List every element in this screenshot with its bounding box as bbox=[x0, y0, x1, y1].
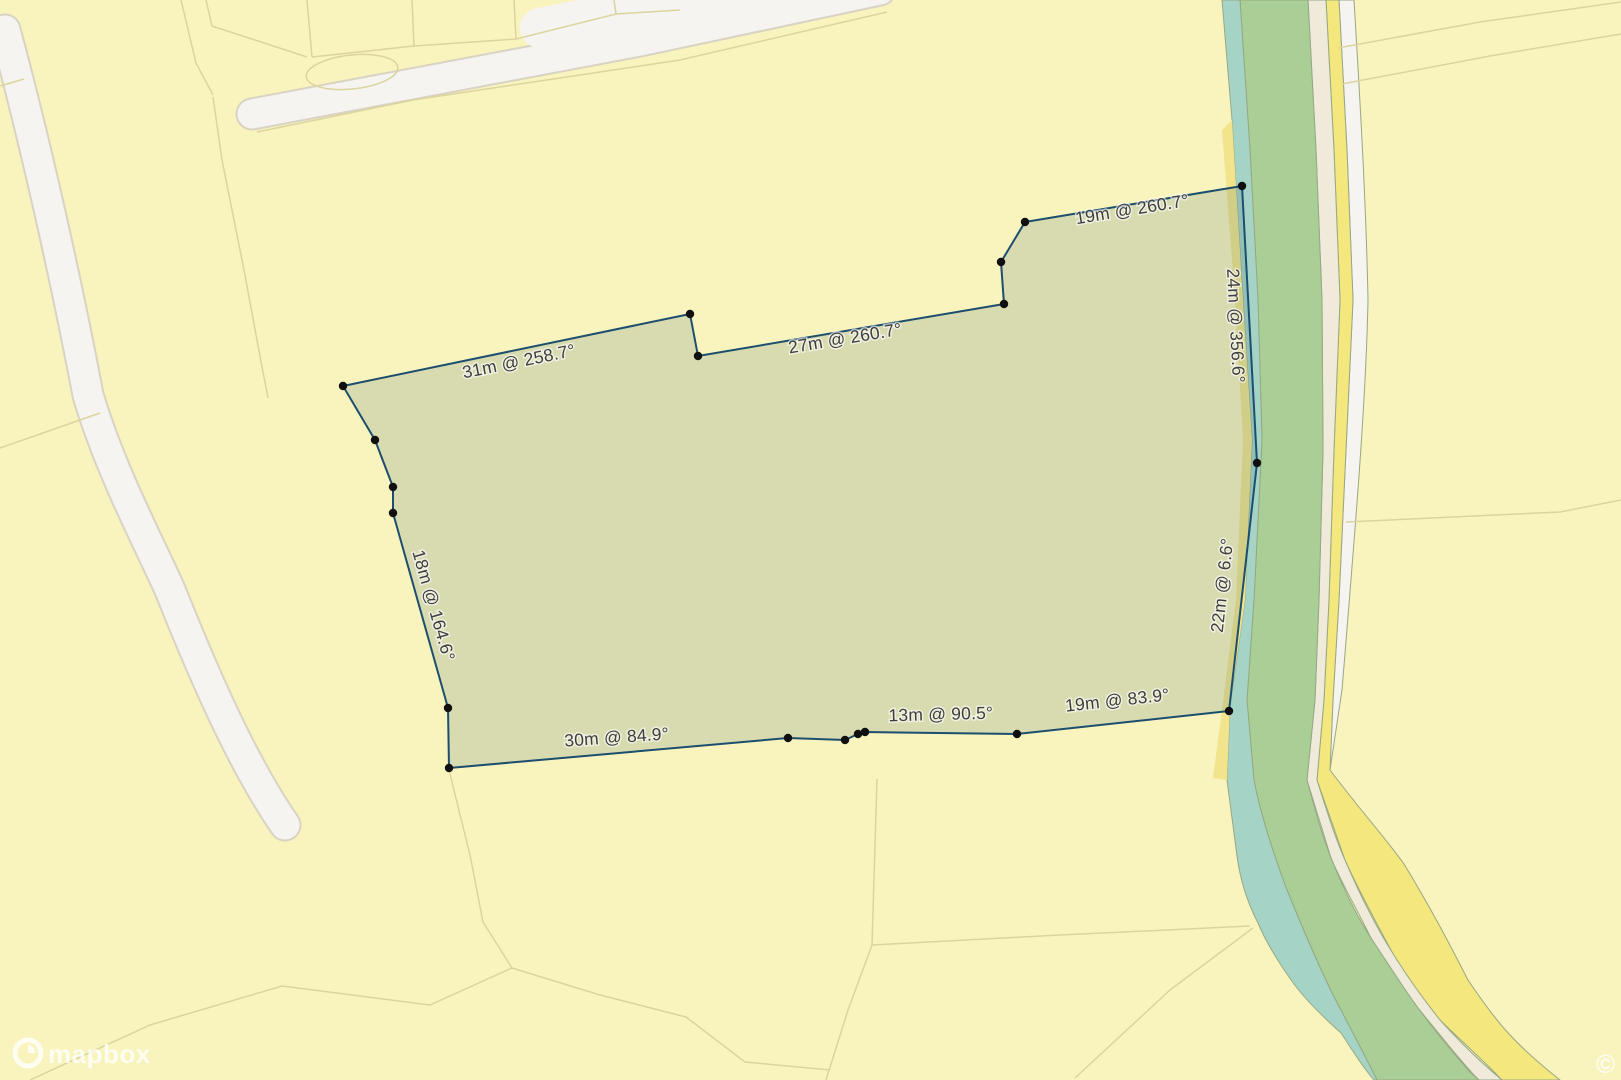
vertex-marker[interactable] bbox=[371, 436, 379, 444]
vertex-marker[interactable] bbox=[1225, 707, 1233, 715]
vertex-marker[interactable] bbox=[1253, 459, 1261, 467]
vertex-marker[interactable] bbox=[339, 382, 347, 390]
vertex-marker[interactable] bbox=[1238, 182, 1246, 190]
map-canvas[interactable]: 31m @ 258.7° 27m @ 260.7° 19m @ 260.7° 2… bbox=[0, 0, 1621, 1080]
vertex-marker[interactable] bbox=[686, 310, 694, 318]
vertex-marker[interactable] bbox=[997, 258, 1005, 266]
attribution-copyright[interactable]: © bbox=[1596, 1049, 1615, 1079]
vertex-marker[interactable] bbox=[389, 483, 397, 491]
vertex-marker[interactable] bbox=[445, 764, 453, 772]
vertex-marker[interactable] bbox=[1000, 300, 1008, 308]
vertex-marker[interactable] bbox=[841, 736, 849, 744]
vertex-marker[interactable] bbox=[784, 734, 792, 742]
vertex-marker[interactable] bbox=[1021, 218, 1029, 226]
mapbox-logo-wordmark: mapbox bbox=[48, 1039, 151, 1069]
map-viewport[interactable]: 31m @ 258.7° 27m @ 260.7° 19m @ 260.7° 2… bbox=[0, 0, 1621, 1080]
vertex-marker[interactable] bbox=[444, 704, 452, 712]
vertex-marker[interactable] bbox=[694, 352, 702, 360]
vertex-marker[interactable] bbox=[389, 509, 397, 517]
vertex-marker[interactable] bbox=[1013, 730, 1021, 738]
edge-measurement-label: 13m @ 90.5° bbox=[888, 703, 993, 726]
vertex-marker[interactable] bbox=[854, 730, 862, 738]
